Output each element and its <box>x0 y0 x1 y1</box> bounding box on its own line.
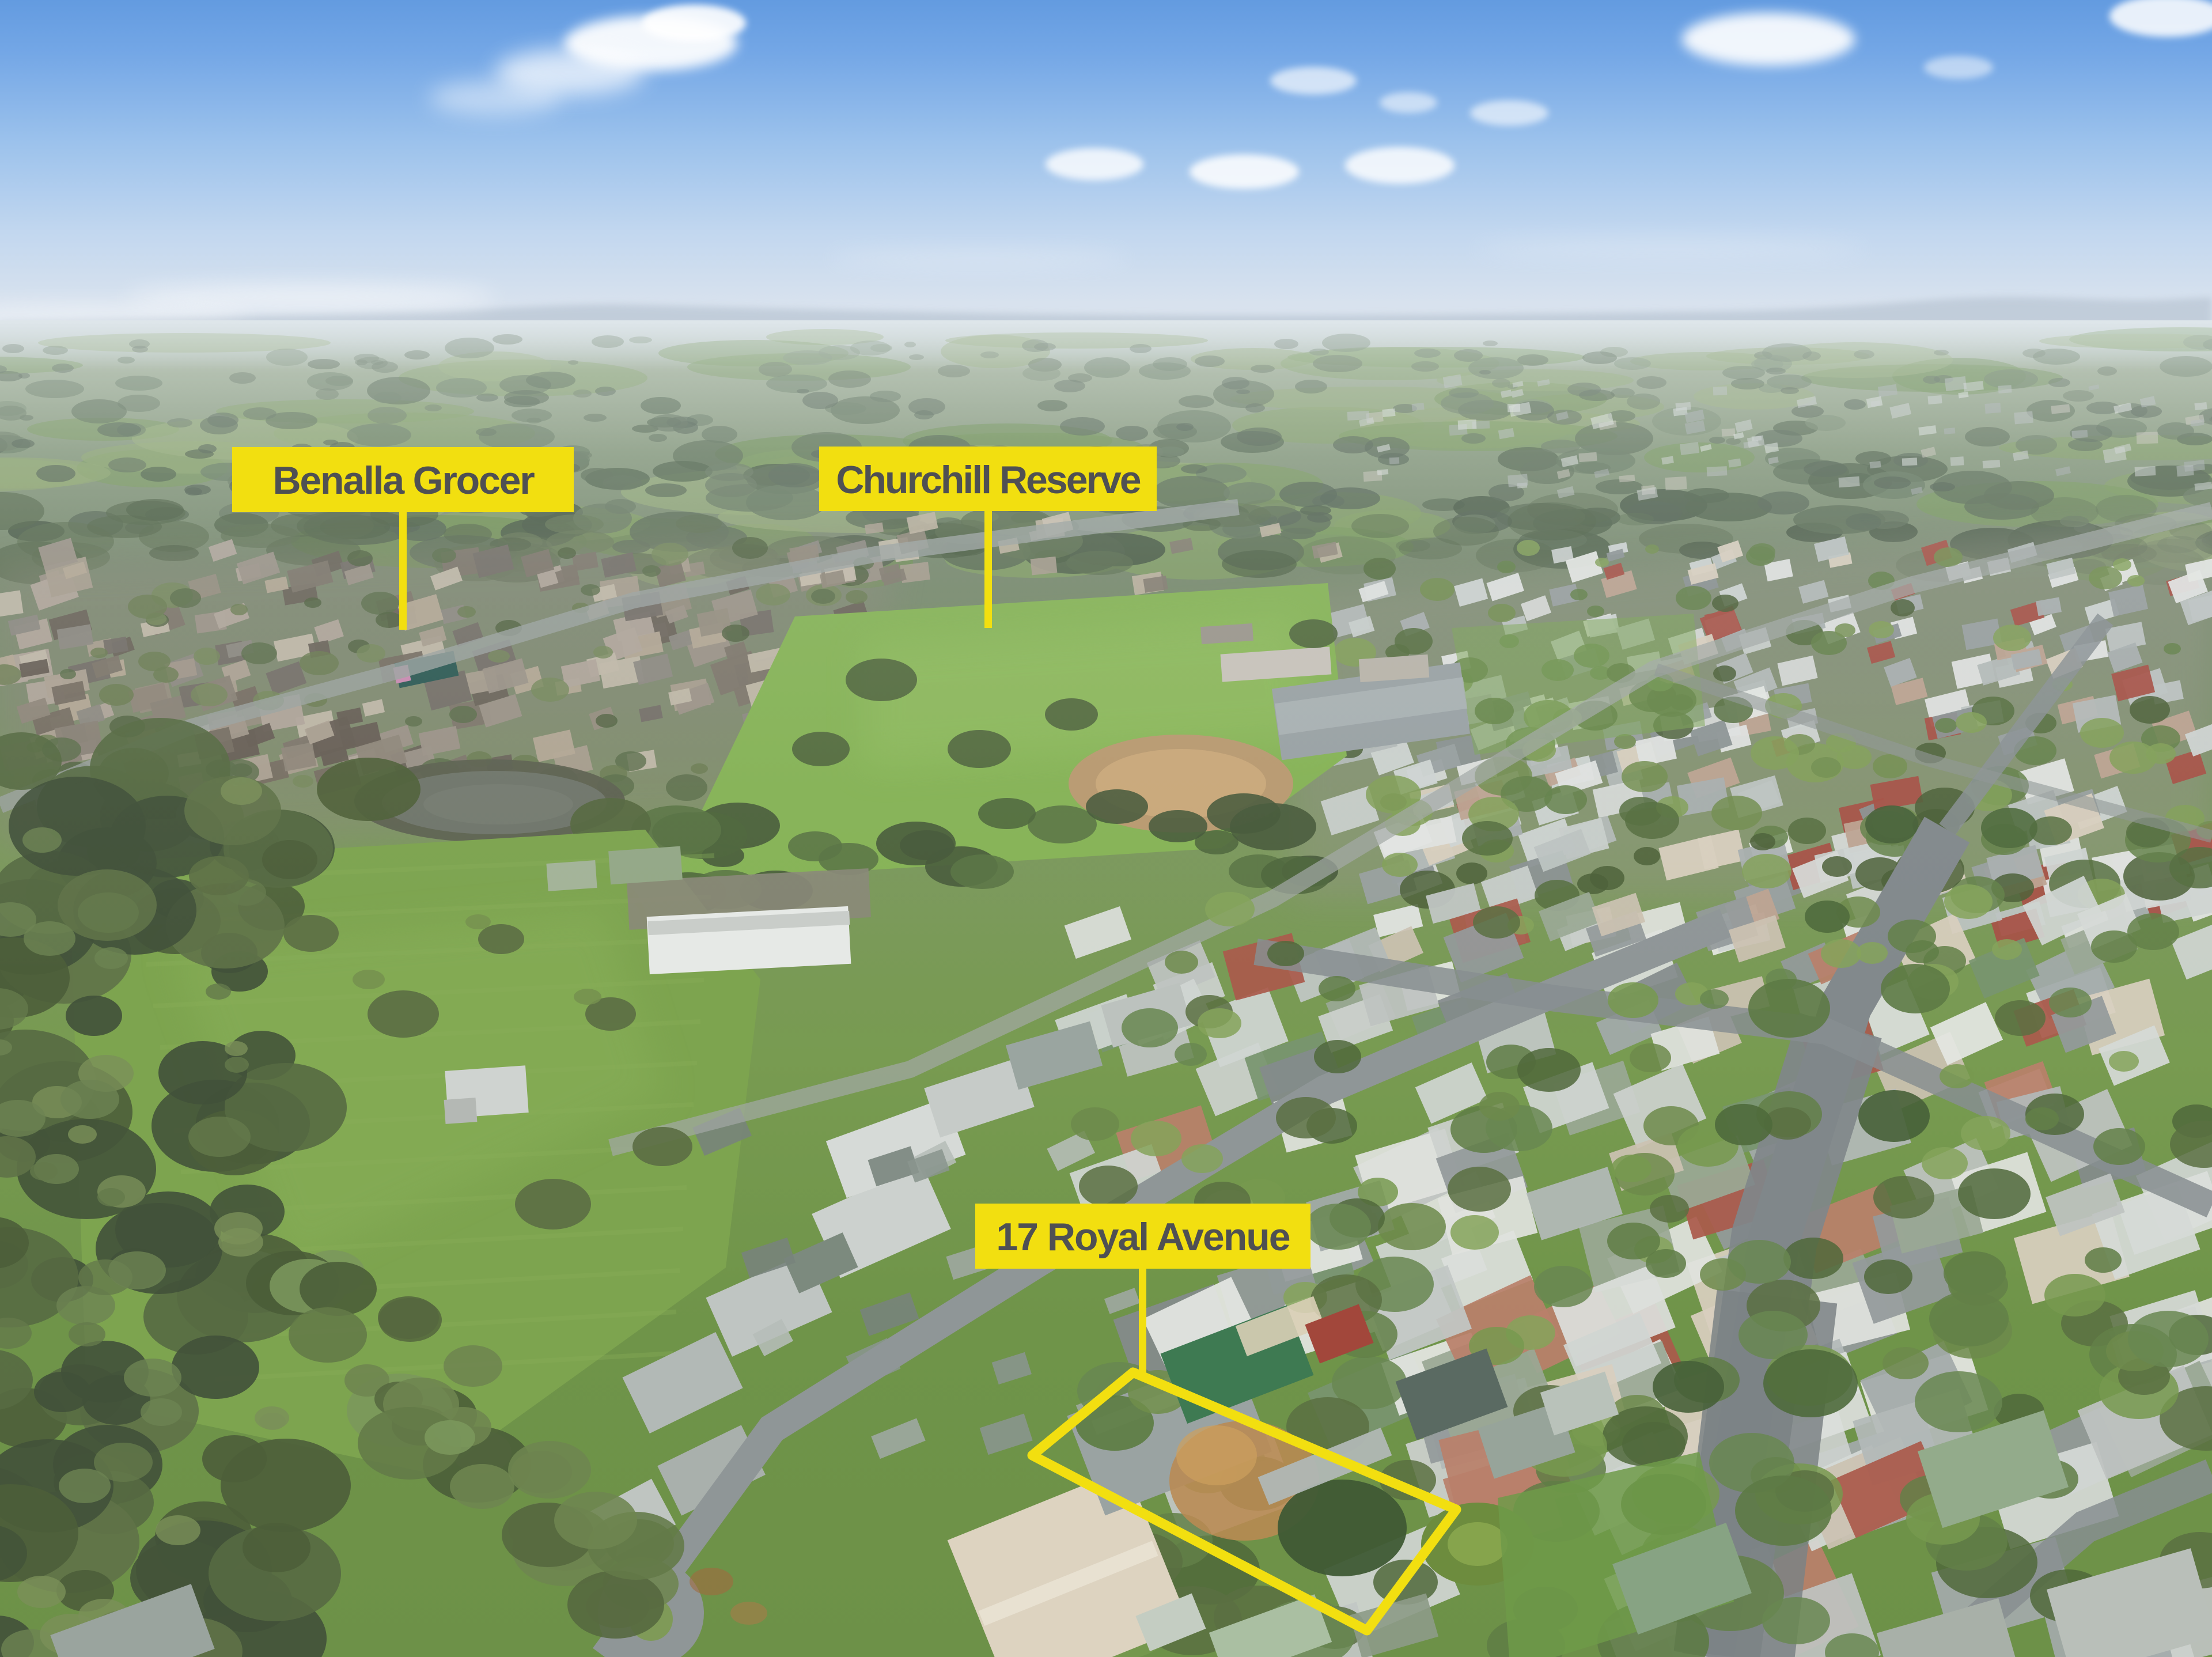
svg-text:17 Royal Avenue: 17 Royal Avenue <box>996 1215 1289 1259</box>
svg-text:Churchill Reserve: Churchill Reserve <box>836 458 1140 502</box>
svg-text:Benalla Grocer: Benalla Grocer <box>273 459 535 502</box>
